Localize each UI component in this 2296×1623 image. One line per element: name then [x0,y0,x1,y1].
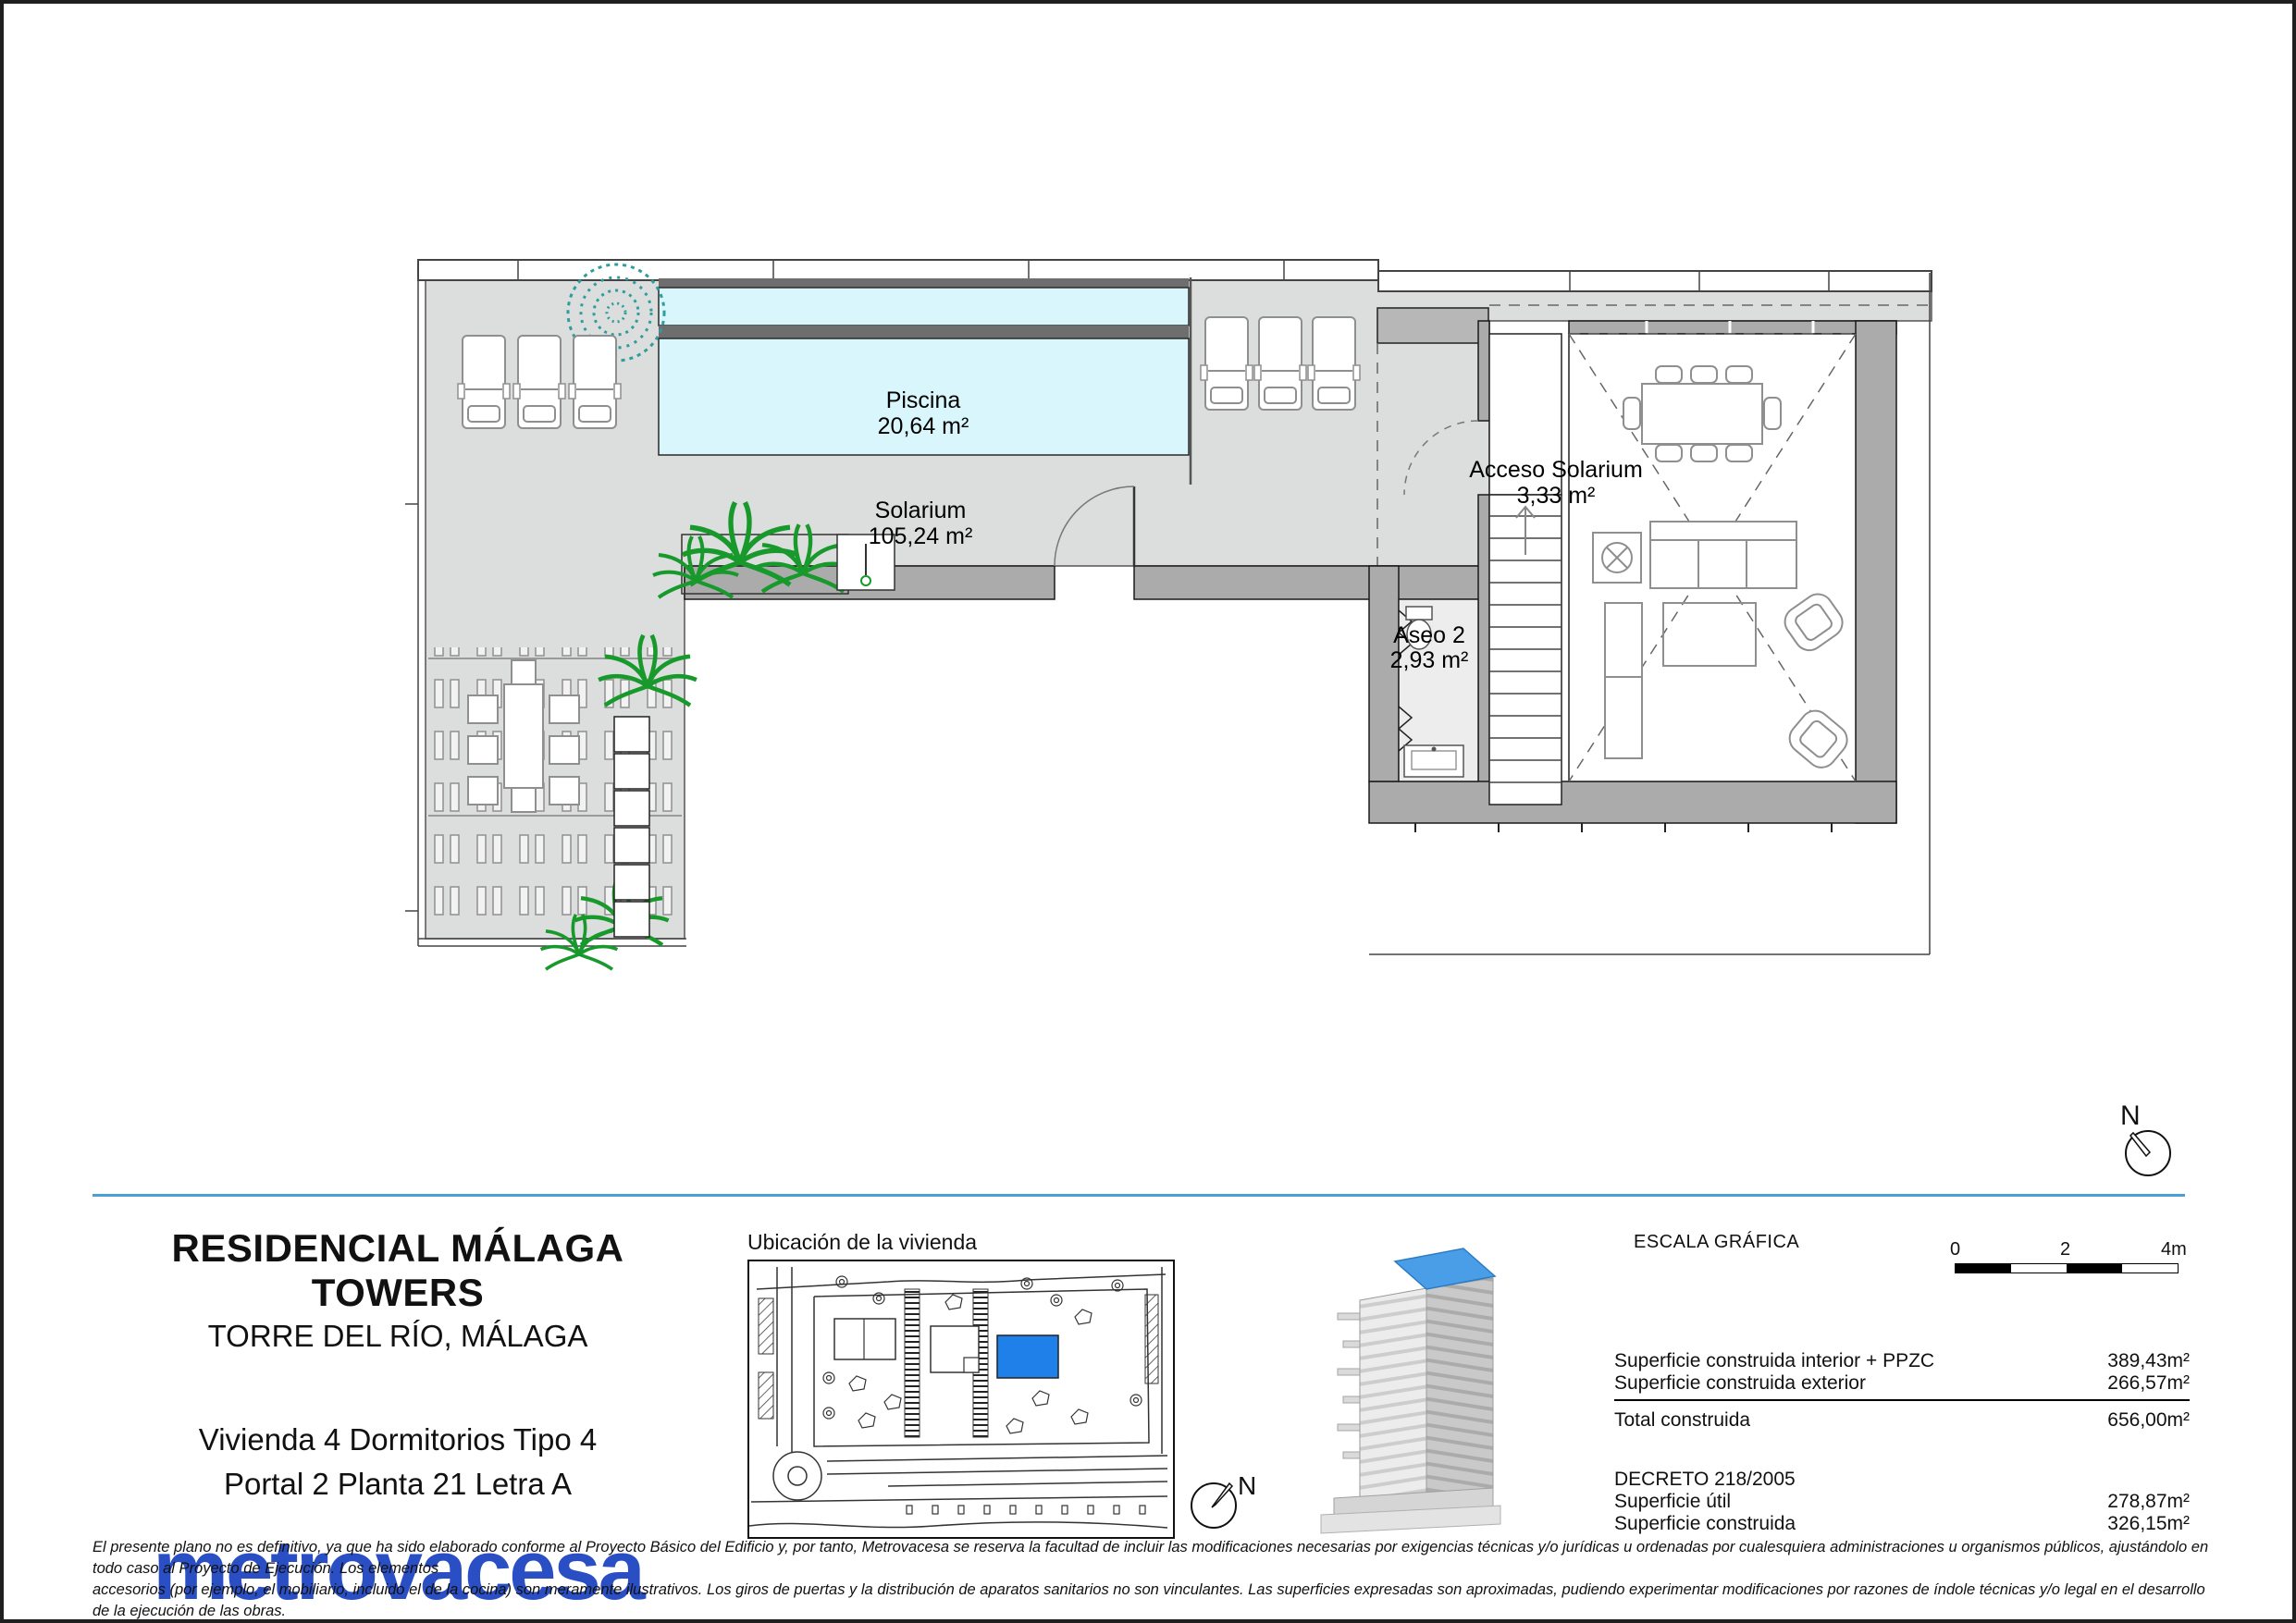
tower-side-face [1426,1278,1493,1498]
area-value: 326,15m² [2107,1513,2190,1535]
map-north-compass-icon: N [1182,1469,1284,1535]
unit-address: Portal 2 Planta 21 Letra A [88,1467,708,1502]
acceso-solarium-area: 3,33 m² [1517,483,1596,509]
total-value: 656,00m² [2107,1409,2190,1432]
highlighted-building [997,1335,1058,1378]
living-room [1569,334,1856,781]
planter-block [1377,308,1488,343]
scale-tick-4: 4m [2161,1239,2187,1260]
scale-tick-2: 2 [2060,1239,2070,1260]
area-value: 389,43m² [2107,1350,2190,1372]
areas-table: Superficie construida interior + PPZC 38… [1614,1350,2190,1535]
disclaimer-line2: accesorios (por ejemplo, el mobiliario, … [93,1580,2213,1622]
project-title: RESIDENCIAL MÁLAGA TOWERS [88,1226,708,1315]
solarium-area: 105,24 m² [869,523,973,549]
total-label: Total construida [1614,1409,1750,1432]
plan-sheet: Piscina 20,64 m² Solarium 105,24 m² Acce… [0,0,2296,1623]
pool [659,277,1191,485]
scale-bar: 0 2 4m [1950,1239,2181,1276]
project-location: TORRE DEL RÍO, MÁLAGA [88,1319,708,1354]
tower-illustration [1306,1239,1514,1544]
map-north-label: N [1238,1471,1256,1500]
scale-bar-segments [1955,1263,2179,1273]
table-row: Superficie construida exterior 266,57m² [1614,1372,2190,1395]
acceso-solarium-label: Acceso Solarium [1469,457,1643,483]
sun-loungers-left [458,336,621,428]
aseo2-label: Aseo 2 [1393,622,1465,648]
tower-front-face [1360,1288,1426,1510]
table-divider [1614,1399,2190,1401]
scale-title: ESCALA GRÁFICA [1634,1232,1799,1253]
area-value: 278,87m² [2107,1491,2190,1513]
legal-disclaimer: El presente plano no es definitivo, ya q… [93,1537,2213,1622]
floor-plan: Piscina 20,64 m² Solarium 105,24 m² Acce… [0,0,2296,1193]
north-label: N [2120,1100,2141,1131]
shelf-unit [1605,603,1642,758]
area-value: 266,57m² [2107,1372,2190,1395]
decree-title: DECRETO 218/2005 [1614,1469,2190,1491]
north-compass-icon: N [2120,1100,2170,1175]
piscina-label: Piscina [886,387,961,413]
stairs [1489,495,1562,805]
aseo2-area: 2,93 m² [1390,647,1469,673]
table-row-total: Total construida 656,00m² [1614,1409,2190,1432]
piscina-area: 20,64 m² [878,413,969,439]
disclaimer-line1: El presente plano no es definitivo, ya q… [93,1537,2213,1580]
location-map-title: Ubicación de la vivienda [747,1230,977,1255]
table-row: Superficie construida interior + PPZC 38… [1614,1350,2190,1372]
sofa [1650,522,1796,588]
unit-type: Vivienda 4 Dormitorios Tipo 4 [88,1422,708,1457]
area-label: Superficie construida exterior [1614,1372,1866,1395]
location-map [747,1260,1175,1539]
sun-loungers-right [1201,317,1360,410]
area-label: Superficie construida [1614,1513,1796,1535]
footer-divider [93,1194,2185,1197]
table-row: Superficie construida 326,15m² [1614,1513,2190,1535]
area-label: Superficie construida interior + PPZC [1614,1350,1934,1372]
site-map-sidewalk [907,1506,1145,1514]
scale-tick-0: 0 [1950,1239,1960,1260]
tv-unit [1593,533,1641,583]
site-buildings [834,1319,1058,1378]
solarium-label: Solarium [875,498,967,523]
table-row: Superficie útil 278,87m² [1614,1491,2190,1513]
area-label: Superficie útil [1614,1491,1731,1513]
